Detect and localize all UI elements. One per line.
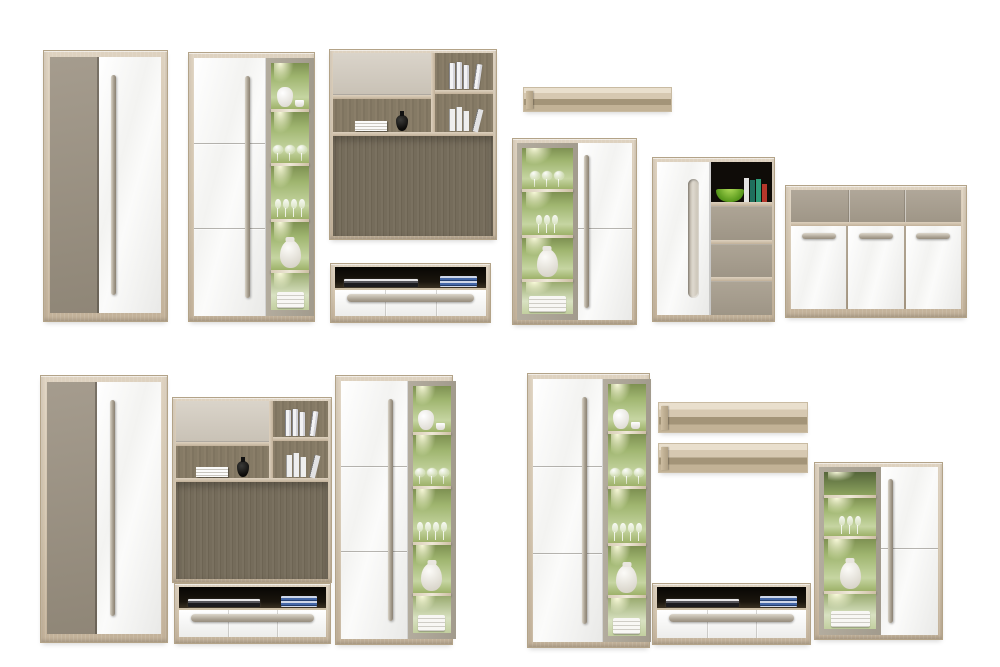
- sideboard-door: [791, 226, 846, 309]
- book: [744, 178, 749, 202]
- wardrobe-left-door: [47, 382, 97, 634]
- champagne-flute: [425, 522, 431, 540]
- drawer: [711, 244, 772, 278]
- door-row: [791, 226, 961, 309]
- white-jug: [277, 87, 293, 107]
- media-shelf: [179, 587, 326, 610]
- white-vase: [537, 249, 558, 277]
- binder: [463, 65, 469, 89]
- binder: [299, 412, 305, 436]
- glass-display-column: [408, 381, 456, 639]
- binder: [292, 409, 298, 436]
- tv-stand-front: [657, 587, 806, 638]
- binder: [449, 63, 455, 89]
- cabinet-front: [533, 379, 644, 642]
- door-handle: [582, 397, 587, 623]
- wardrobe-right-door: [99, 57, 161, 313]
- champagne-flute: [299, 199, 305, 217]
- cabinet-door: [578, 143, 632, 320]
- tv-back-panel: [333, 136, 493, 236]
- open-shelf-books: [273, 441, 328, 477]
- champagne-flute: [636, 523, 642, 541]
- leaning-book: [472, 108, 483, 132]
- folded-towels: [277, 292, 304, 308]
- cabinet-front: [341, 381, 447, 639]
- wardrobe-right-door: [97, 382, 161, 634]
- drawer-seam: [848, 190, 849, 222]
- display-cabinet-small: [814, 462, 943, 640]
- media-shelf: [335, 267, 486, 290]
- champagne-flute: [291, 199, 297, 217]
- wine-glass: [610, 468, 620, 484]
- white-cup: [436, 423, 445, 430]
- book-row: [744, 178, 767, 202]
- white-jug: [418, 410, 434, 430]
- display-compartment-ceramics: [413, 386, 451, 432]
- book: [300, 457, 306, 477]
- sideboard-front: [791, 190, 961, 309]
- champagne-flute: [620, 523, 626, 541]
- sideboard-door: [906, 226, 961, 309]
- drawer-front: [657, 610, 806, 638]
- furniture-catalog-canvas: [0, 0, 1000, 667]
- chest-right-column: [711, 162, 772, 315]
- white-jug: [613, 409, 629, 429]
- dvd-player: [344, 279, 418, 287]
- open-shelf-books: [435, 94, 493, 131]
- panel-front: [176, 401, 328, 579]
- champagne-flute: [417, 522, 423, 540]
- wine-glass: [273, 145, 283, 161]
- cabinet-front: [517, 143, 632, 320]
- shelf-board: [523, 87, 672, 112]
- glass-display-column: [819, 467, 881, 635]
- wall-shelf: [523, 87, 672, 112]
- cabinet-door: [533, 379, 603, 642]
- display-compartment-vase: [413, 545, 451, 593]
- sideboard-door: [848, 226, 903, 309]
- display-compartment-wine-glasses: [271, 112, 309, 163]
- display-compartment-flutes: [608, 489, 646, 543]
- folded-towels: [529, 296, 566, 312]
- black-vase: [396, 115, 408, 131]
- glass-display-column: [266, 58, 314, 316]
- display-cabinet-tall: [188, 52, 315, 322]
- door-seam: [341, 466, 407, 467]
- door-handle: [245, 76, 250, 298]
- glass-display-column: [603, 379, 651, 642]
- door-and-drawer-chest: [652, 157, 775, 322]
- panel-shelf-section: [176, 401, 328, 478]
- drawer-handle: [191, 614, 315, 622]
- black-vase: [237, 461, 249, 477]
- wardrobe-left-door: [50, 57, 99, 313]
- door-seam: [533, 466, 602, 467]
- display-compartment-towels: [271, 273, 309, 310]
- tv-stand-front: [179, 587, 326, 637]
- book: [286, 455, 292, 477]
- leaning-book: [309, 454, 320, 478]
- door-seam: [194, 228, 265, 229]
- tv-stand: [330, 263, 491, 323]
- green-bowl: [716, 189, 744, 202]
- wardrobe-front: [47, 382, 161, 634]
- folded-towels: [831, 611, 870, 627]
- champagne-flute: [441, 522, 447, 540]
- wardrobe: [43, 50, 168, 322]
- champagne-flute: [855, 516, 861, 534]
- wine-glass: [439, 468, 449, 484]
- wine-glass: [285, 145, 295, 161]
- door-seam: [341, 551, 407, 552]
- open-niche: [176, 446, 269, 478]
- display-compartment-flutes: [271, 166, 309, 219]
- display-compartment-ceramics: [608, 384, 646, 431]
- display-compartment-flutes: [824, 498, 876, 536]
- book-pile: [440, 276, 477, 287]
- white-cup: [295, 100, 304, 107]
- cabinet-front: [194, 58, 309, 316]
- wall-shelf: [658, 443, 808, 473]
- champagne-flute: [275, 199, 281, 217]
- book: [449, 109, 455, 131]
- binder: [309, 411, 318, 437]
- display-compartment-wine-glasses: [608, 434, 646, 486]
- binder: [473, 64, 482, 90]
- binder: [285, 410, 291, 436]
- panel-right-column: [273, 401, 328, 478]
- open-niche: [333, 99, 431, 132]
- champagne-flute: [283, 199, 289, 217]
- cabinet-door: [341, 381, 408, 639]
- door-seam: [194, 143, 265, 144]
- top-drawer-band: [791, 190, 961, 222]
- champagne-flute: [847, 516, 853, 534]
- panel-left-column: [333, 53, 431, 132]
- display-compartment-vase: [522, 238, 573, 279]
- wall-storage-panel: [329, 49, 497, 240]
- white-cup: [631, 422, 640, 429]
- champagne-flute: [433, 522, 439, 540]
- wine-glass: [415, 468, 425, 484]
- drawer-front: [179, 610, 326, 637]
- book-stack: [355, 121, 387, 131]
- display-compartment-wine-glasses: [522, 148, 573, 189]
- door-handle: [888, 479, 893, 624]
- wine-glass: [554, 171, 564, 187]
- door-handle: [916, 233, 950, 239]
- wardrobe: [40, 375, 168, 643]
- door-handle: [688, 179, 699, 298]
- wall-shelf: [658, 402, 808, 433]
- cabinet-door: [881, 467, 938, 635]
- tv-back-panel: [176, 482, 328, 579]
- folded-towels: [613, 618, 640, 634]
- wine-glass: [530, 171, 540, 187]
- book-stack: [196, 467, 228, 477]
- display-compartment-vase: [271, 222, 309, 270]
- flap-door: [176, 401, 269, 442]
- open-shelf-binders: [435, 53, 493, 90]
- tv-stand: [652, 583, 811, 645]
- display-compartment-vase: [824, 539, 876, 592]
- book: [293, 453, 299, 477]
- chest-front: [657, 162, 770, 315]
- drawer-front: [335, 290, 486, 316]
- folded-towels: [418, 615, 445, 631]
- cabinet-front: [819, 467, 938, 635]
- display-compartment-flutes: [413, 489, 451, 542]
- champagne-flute: [628, 523, 634, 541]
- panel-left-column: [176, 401, 269, 478]
- book: [463, 111, 469, 131]
- open-niche: [711, 162, 772, 202]
- book: [762, 184, 767, 202]
- drawer: [711, 206, 772, 240]
- drawer-handle: [347, 294, 474, 302]
- display-cabinet-small: [512, 138, 637, 325]
- media-shelf: [657, 587, 806, 610]
- flap-door: [333, 53, 431, 95]
- wine-glass: [634, 468, 644, 484]
- champagne-flute: [552, 215, 558, 233]
- white-vase: [840, 561, 861, 589]
- tv-stand-front: [335, 267, 486, 316]
- tv-stand: [174, 583, 331, 644]
- book: [750, 180, 755, 202]
- white-vase: [421, 563, 442, 591]
- book-pile: [281, 596, 317, 607]
- door-handle: [802, 233, 836, 239]
- panel-right-column: [435, 53, 493, 132]
- cabinet-door: [194, 58, 266, 316]
- wall-storage-panel: [172, 397, 332, 583]
- display-compartment-vase: [608, 546, 646, 595]
- panel-shelf-section: [333, 53, 493, 132]
- door-seam: [533, 553, 602, 554]
- book: [756, 179, 761, 202]
- shelf-board: [658, 402, 808, 433]
- open-shelf-binders: [273, 401, 328, 437]
- white-vase: [616, 565, 637, 593]
- binder: [456, 62, 462, 89]
- champagne-flute: [544, 215, 550, 233]
- dvd-player: [666, 599, 739, 607]
- door-handle: [388, 399, 393, 621]
- display-compartment-towels: [824, 594, 876, 629]
- wine-glass: [427, 468, 437, 484]
- white-vase: [280, 240, 301, 268]
- drawer-handle: [669, 614, 794, 622]
- drawer-seam: [904, 190, 905, 222]
- dvd-player: [188, 599, 260, 607]
- champagne-flute: [536, 215, 542, 233]
- display-compartment-wine-glasses: [413, 435, 451, 486]
- display-compartment-lit: [824, 472, 876, 495]
- door-handle: [111, 75, 116, 295]
- shelf-board: [658, 443, 808, 473]
- door-handle: [584, 155, 589, 307]
- sideboard: [785, 185, 967, 318]
- wine-glass: [297, 145, 307, 161]
- display-cabinet-tall: [335, 375, 453, 645]
- panel-front: [333, 53, 493, 236]
- wardrobe-front: [50, 57, 161, 313]
- book-pile: [760, 596, 797, 607]
- drawer: [711, 281, 772, 315]
- book: [456, 107, 462, 131]
- wine-glass: [542, 171, 552, 187]
- champagne-flute: [839, 516, 845, 534]
- display-compartment-towels: [522, 282, 573, 314]
- display-compartment-towels: [608, 598, 646, 636]
- champagne-flute: [612, 523, 618, 541]
- glass-display-column: [517, 143, 578, 320]
- door-handle: [110, 400, 115, 617]
- door-handle: [859, 233, 893, 239]
- wine-glass: [622, 468, 632, 484]
- display-compartment-ceramics: [271, 63, 309, 109]
- display-compartment-towels: [413, 596, 451, 633]
- display-compartment-flutes: [522, 192, 573, 236]
- display-cabinet-tall: [527, 373, 650, 648]
- chest-door: [657, 162, 711, 315]
